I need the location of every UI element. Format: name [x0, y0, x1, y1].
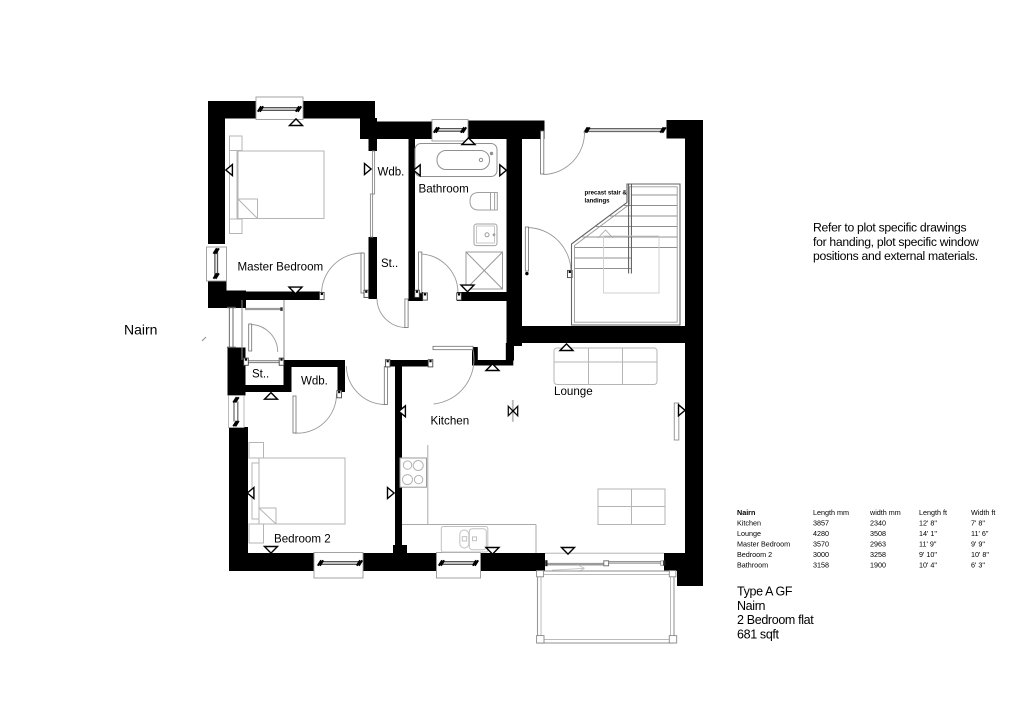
svg-text:9' 9": 9' 9" [971, 540, 985, 549]
svg-text:681 sqft: 681 sqft [737, 627, 780, 641]
svg-text:3570: 3570 [813, 540, 829, 549]
svg-text:Width ft: Width ft [971, 508, 995, 517]
svg-text:3857: 3857 [813, 519, 829, 528]
svg-text:6' 3": 6' 3" [971, 561, 985, 570]
svg-text:St..: St.. [252, 369, 269, 381]
svg-text:Kitchen: Kitchen [431, 415, 470, 428]
svg-text:precast stair &: precast stair & [585, 190, 628, 197]
svg-text:9' 10": 9' 10" [919, 550, 937, 559]
svg-text:width mm: width mm [869, 508, 901, 517]
svg-text:7' 8": 7' 8" [971, 519, 985, 528]
svg-text:3000: 3000 [813, 550, 829, 559]
svg-text:Wdb.: Wdb. [378, 167, 405, 179]
svg-text:Bathroom: Bathroom [737, 561, 768, 570]
svg-text:Refer to plot specific drawing: Refer to plot specific drawings [813, 221, 966, 235]
svg-text:10' 8": 10' 8" [971, 550, 989, 559]
svg-text:Nairn: Nairn [737, 599, 766, 613]
svg-text:landings: landings [585, 198, 611, 205]
svg-text:Bedroom 2: Bedroom 2 [737, 550, 772, 559]
svg-text:St..: St.. [381, 258, 398, 270]
svg-text:Kitchen: Kitchen [737, 519, 761, 528]
svg-text:Master Bedroom: Master Bedroom [238, 261, 324, 274]
svg-text:Length ft: Length ft [919, 508, 947, 517]
svg-text:10' 4": 10' 4" [919, 561, 937, 570]
svg-text:Master Bedroom: Master Bedroom [737, 540, 790, 549]
svg-text:3258: 3258 [870, 550, 886, 559]
svg-text:14' 1": 14' 1" [919, 529, 937, 538]
svg-text:1900: 1900 [870, 561, 886, 570]
svg-text:2 Bedroom flat: 2 Bedroom flat [737, 613, 814, 627]
svg-text:2340: 2340 [870, 519, 886, 528]
svg-text:Type A GF: Type A GF [737, 585, 793, 599]
svg-text:positions and external materia: positions and external materials. [813, 249, 978, 263]
svg-text:3158: 3158 [813, 561, 829, 570]
svg-text:Bathroom: Bathroom [419, 183, 469, 196]
svg-text:4280: 4280 [813, 529, 829, 538]
svg-text:3508: 3508 [870, 529, 886, 538]
svg-text:Bedroom 2: Bedroom 2 [274, 533, 331, 546]
svg-text:2963: 2963 [870, 540, 886, 549]
svg-text:11' 9": 11' 9" [919, 540, 937, 549]
svg-text:Lounge: Lounge [554, 385, 593, 398]
svg-text:Nairn: Nairn [124, 322, 157, 338]
svg-text:11' 6": 11' 6" [971, 529, 989, 538]
svg-text:Nairn: Nairn [737, 508, 755, 517]
svg-text:12' 8": 12' 8" [919, 519, 937, 528]
svg-text:Lounge: Lounge [737, 529, 761, 538]
svg-text:Wdb.: Wdb. [301, 376, 328, 388]
svg-text:for handing, plot specific win: for handing, plot specific window [813, 235, 979, 249]
svg-text:Length mm: Length mm [813, 508, 849, 517]
